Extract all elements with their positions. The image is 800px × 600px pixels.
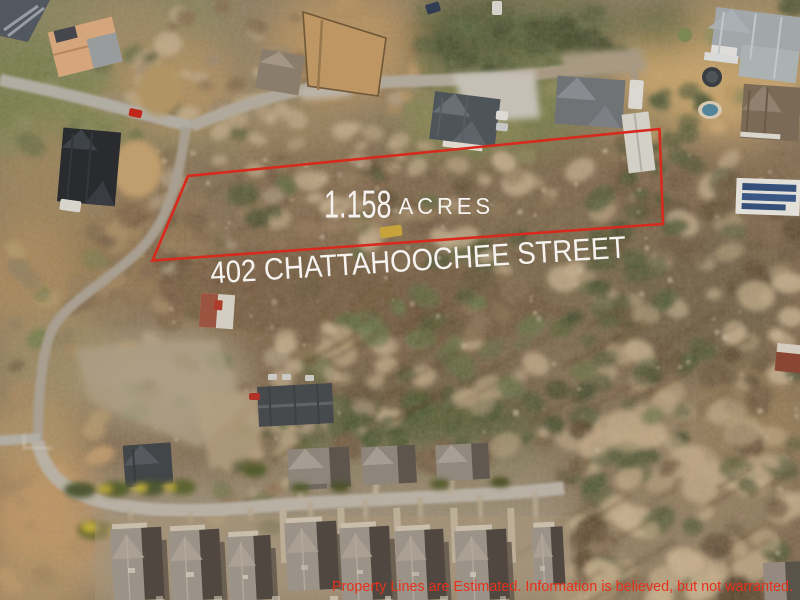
svg-text:Property Lines are Estimated.: Property Lines are Estimated. Informatio… [332, 579, 793, 595]
svg-text:ACRES: ACRES [399, 193, 495, 219]
svg-text:1.158: 1.158 [324, 184, 392, 227]
